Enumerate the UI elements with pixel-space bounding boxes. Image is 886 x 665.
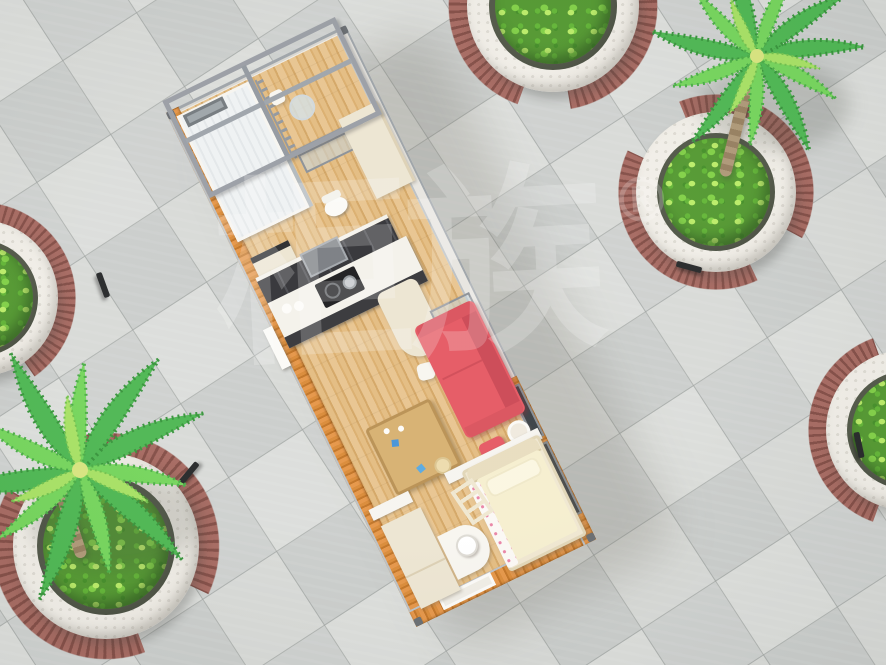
table-item-paper: [391, 439, 399, 447]
palm-tree-icon: [637, 0, 877, 176]
palm-tree-icon: [0, 320, 230, 620]
plaza-scene: 柜族 ®: [0, 0, 886, 665]
planter-right: [806, 330, 886, 530]
